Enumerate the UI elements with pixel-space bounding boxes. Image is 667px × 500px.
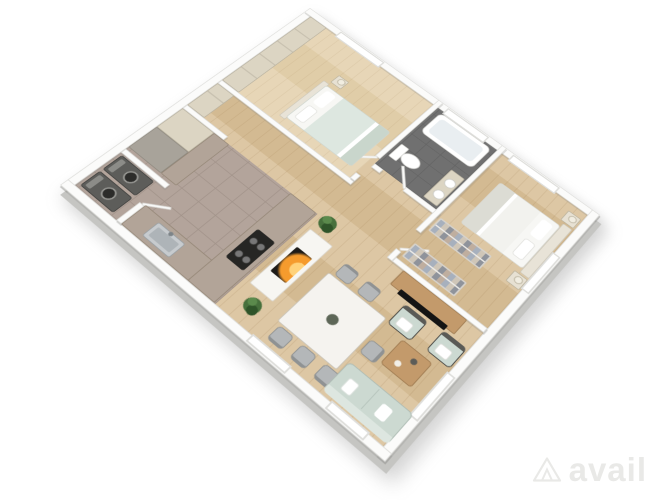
avail-watermark-text: avail: [569, 453, 647, 486]
avail-watermark: avail: [532, 453, 647, 486]
apartment-floorplan: [60, 8, 600, 462]
avail-logo-icon: [532, 456, 562, 483]
floorplan-stage: avail: [0, 0, 667, 500]
